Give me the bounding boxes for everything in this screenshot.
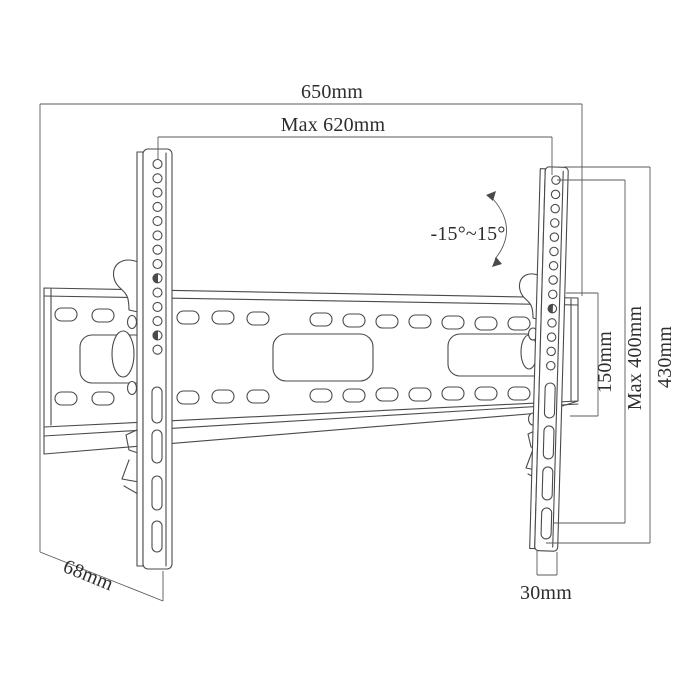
tilt-arrow-down-icon (492, 257, 502, 267)
dim-label-tilt-range: -15°~15° (430, 223, 505, 245)
right-vesa-bracket (530, 167, 569, 552)
dim-label-total-width: 650mm (301, 81, 363, 103)
dim-label-hole-spacing: 150mm (594, 331, 616, 393)
dim-label-depth: 68mm (60, 556, 117, 596)
left-vesa-bracket (137, 149, 172, 569)
tilt-arrow-up-icon (486, 191, 496, 201)
dim-label-max-vesa-height: Max 400mm (624, 305, 646, 410)
mount-dimension-drawing: 650mm Max 620mm 430mm Max 400mm 150mm 30… (0, 0, 700, 700)
dim-label-max-plate-width: Max 620mm (281, 114, 386, 136)
dimension-30mm: 30mm (520, 551, 572, 604)
dim-label-bracket-width: 30mm (520, 582, 572, 604)
drawing-canvas: 650mm Max 620mm 430mm Max 400mm 150mm 30… (0, 0, 700, 700)
tilt-annotation: -15°~15° (430, 191, 506, 267)
dimension-max-620mm: Max 620mm (158, 114, 552, 175)
dim-label-bracket-height: 430mm (654, 326, 676, 388)
